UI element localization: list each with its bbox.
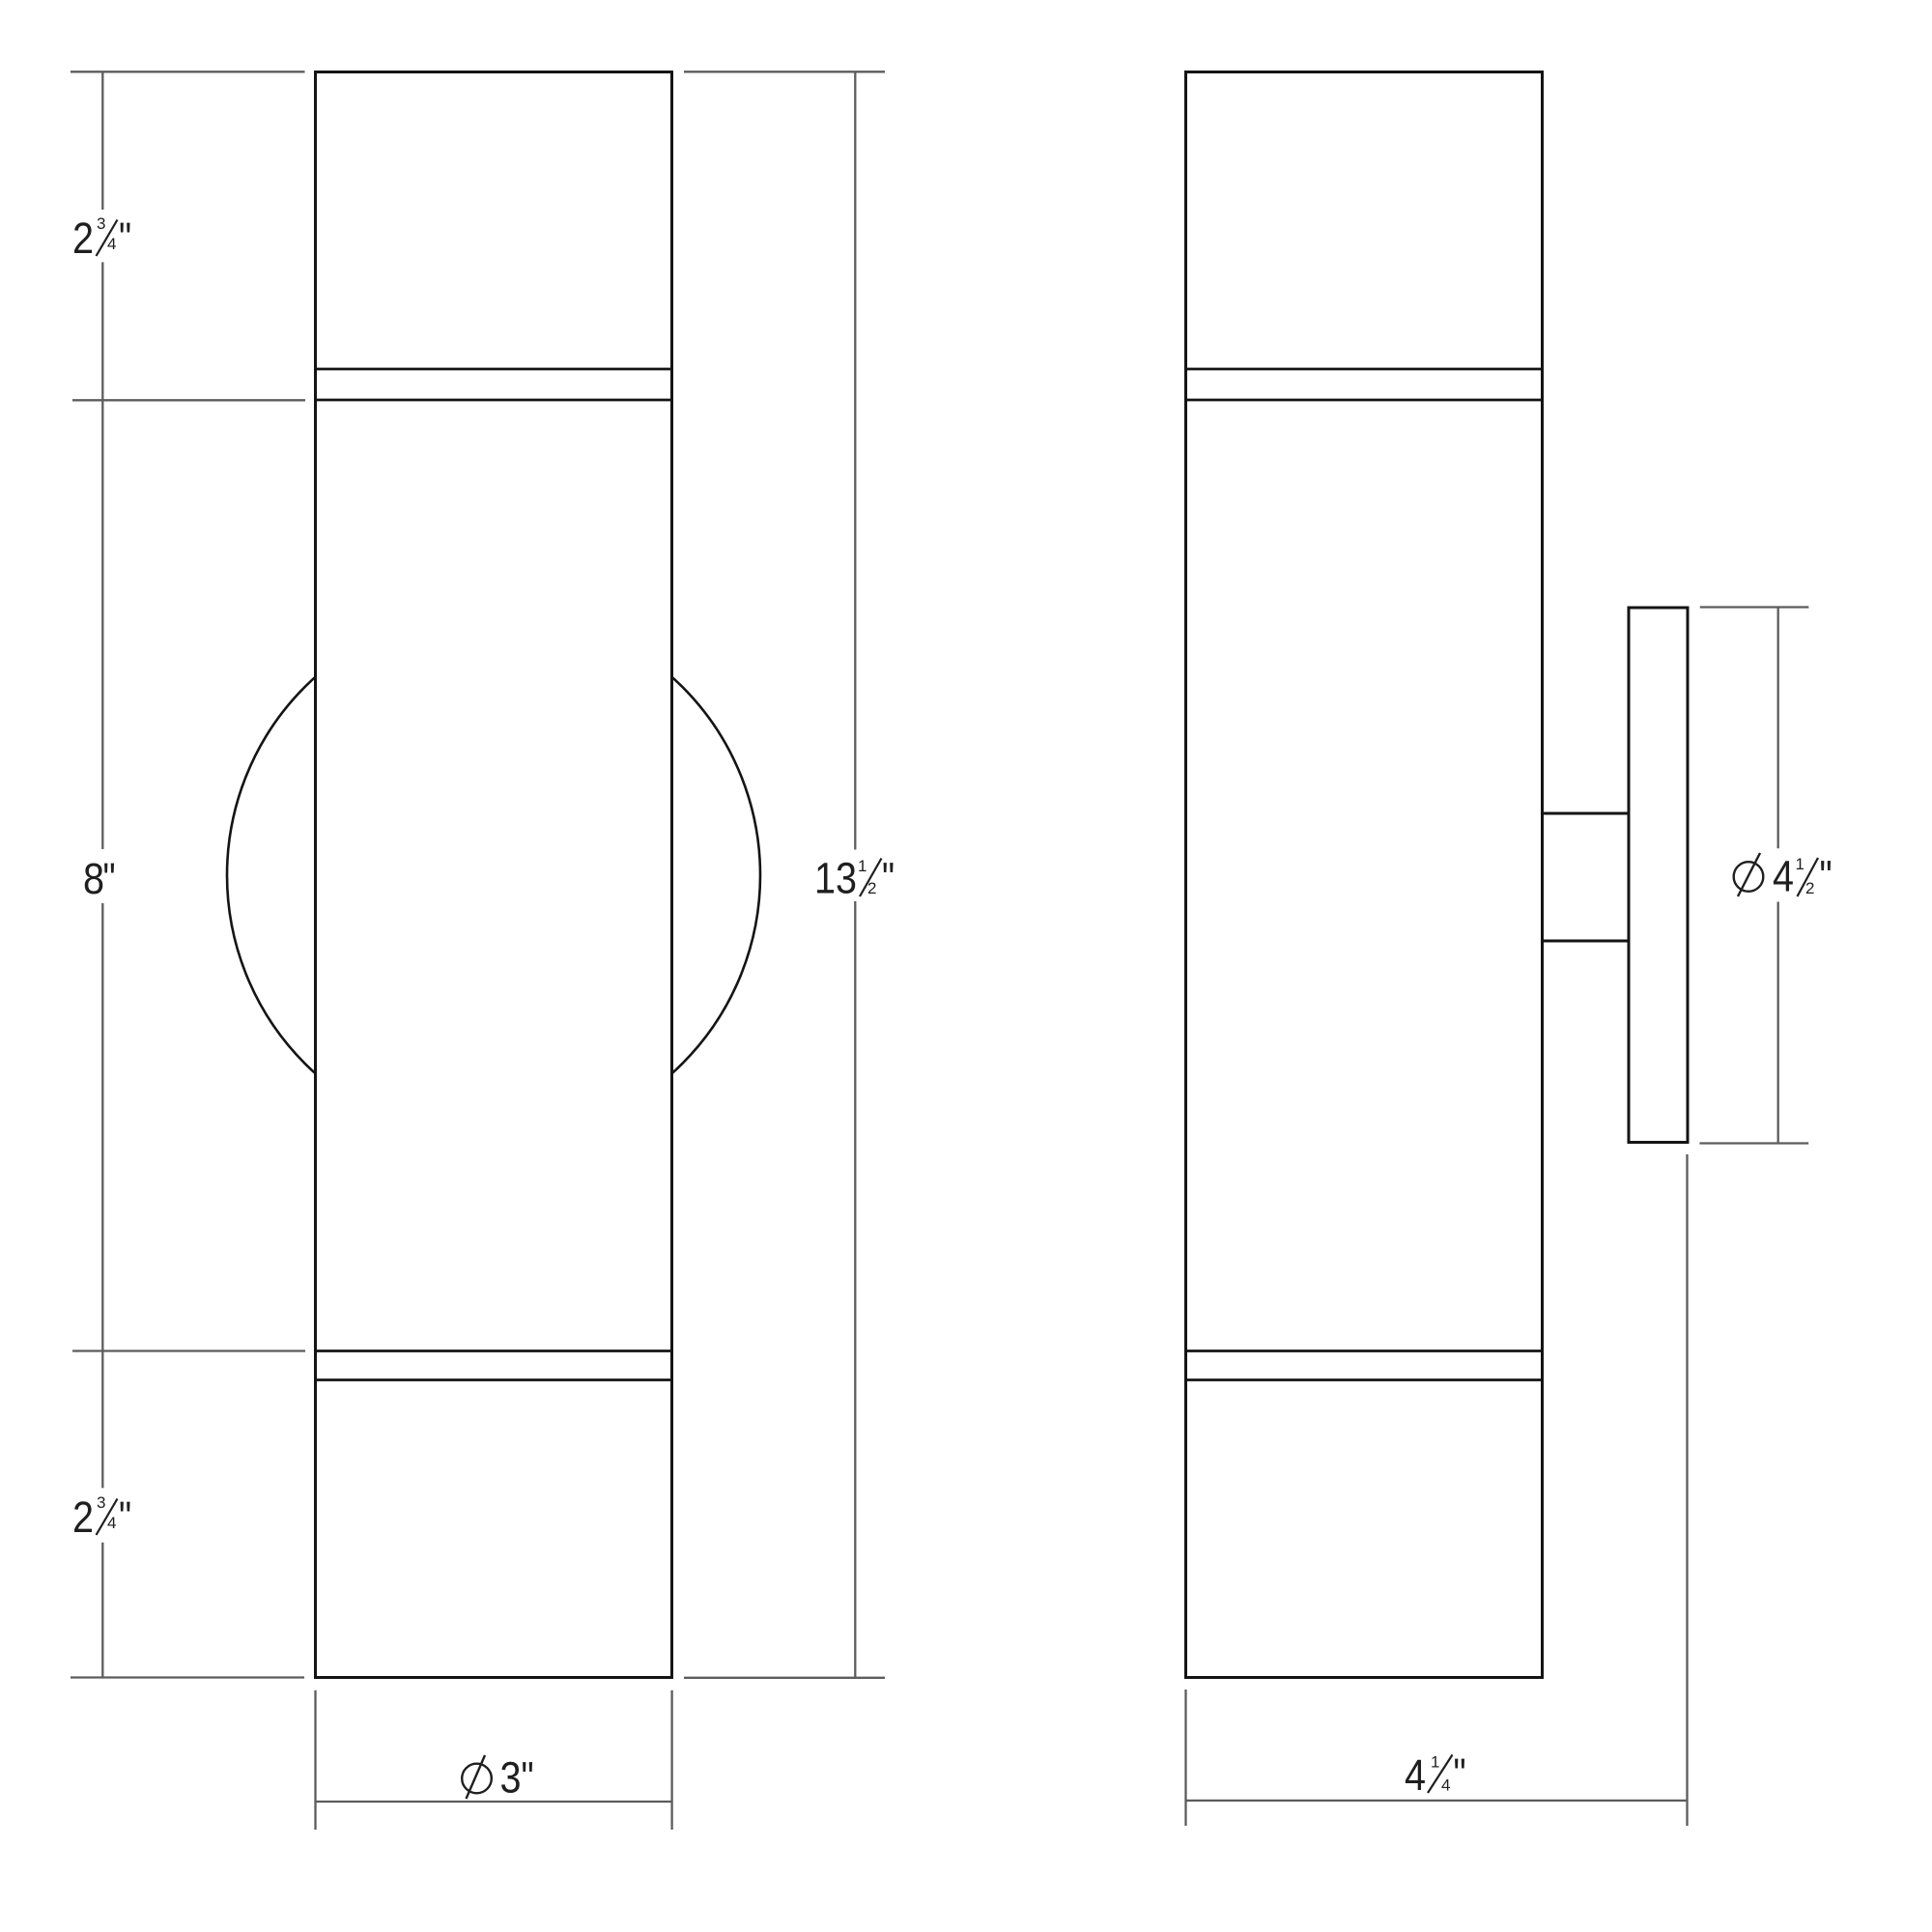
- svg-text:3: 3: [97, 214, 105, 233]
- svg-text:1: 1: [858, 857, 867, 875]
- svg-text:2: 2: [867, 879, 876, 897]
- svg-text:4: 4: [107, 235, 116, 253]
- svg-text:2: 2: [72, 214, 94, 263]
- svg-text:4: 4: [1773, 852, 1794, 900]
- svg-text:": ": [119, 214, 131, 263]
- svg-text:": ": [882, 854, 895, 902]
- svg-text:1: 1: [1431, 1753, 1439, 1772]
- svg-text:2: 2: [1805, 879, 1814, 897]
- svg-text:3: 3: [500, 1753, 522, 1802]
- svg-text:8: 8: [83, 855, 104, 903]
- svg-text:": ": [103, 855, 116, 903]
- svg-text:2: 2: [72, 1493, 94, 1542]
- svg-text:1: 1: [1796, 855, 1804, 873]
- svg-text:3: 3: [97, 1493, 105, 1512]
- svg-text:": ": [119, 1493, 131, 1542]
- svg-text:": ": [1820, 852, 1833, 900]
- svg-text:4: 4: [1405, 1751, 1426, 1800]
- svg-text:13: 13: [814, 854, 857, 902]
- svg-text:4: 4: [1441, 1776, 1450, 1795]
- svg-text:": ": [1454, 1750, 1466, 1799]
- svg-text:": ": [522, 1753, 534, 1802]
- svg-text:4: 4: [107, 1514, 116, 1532]
